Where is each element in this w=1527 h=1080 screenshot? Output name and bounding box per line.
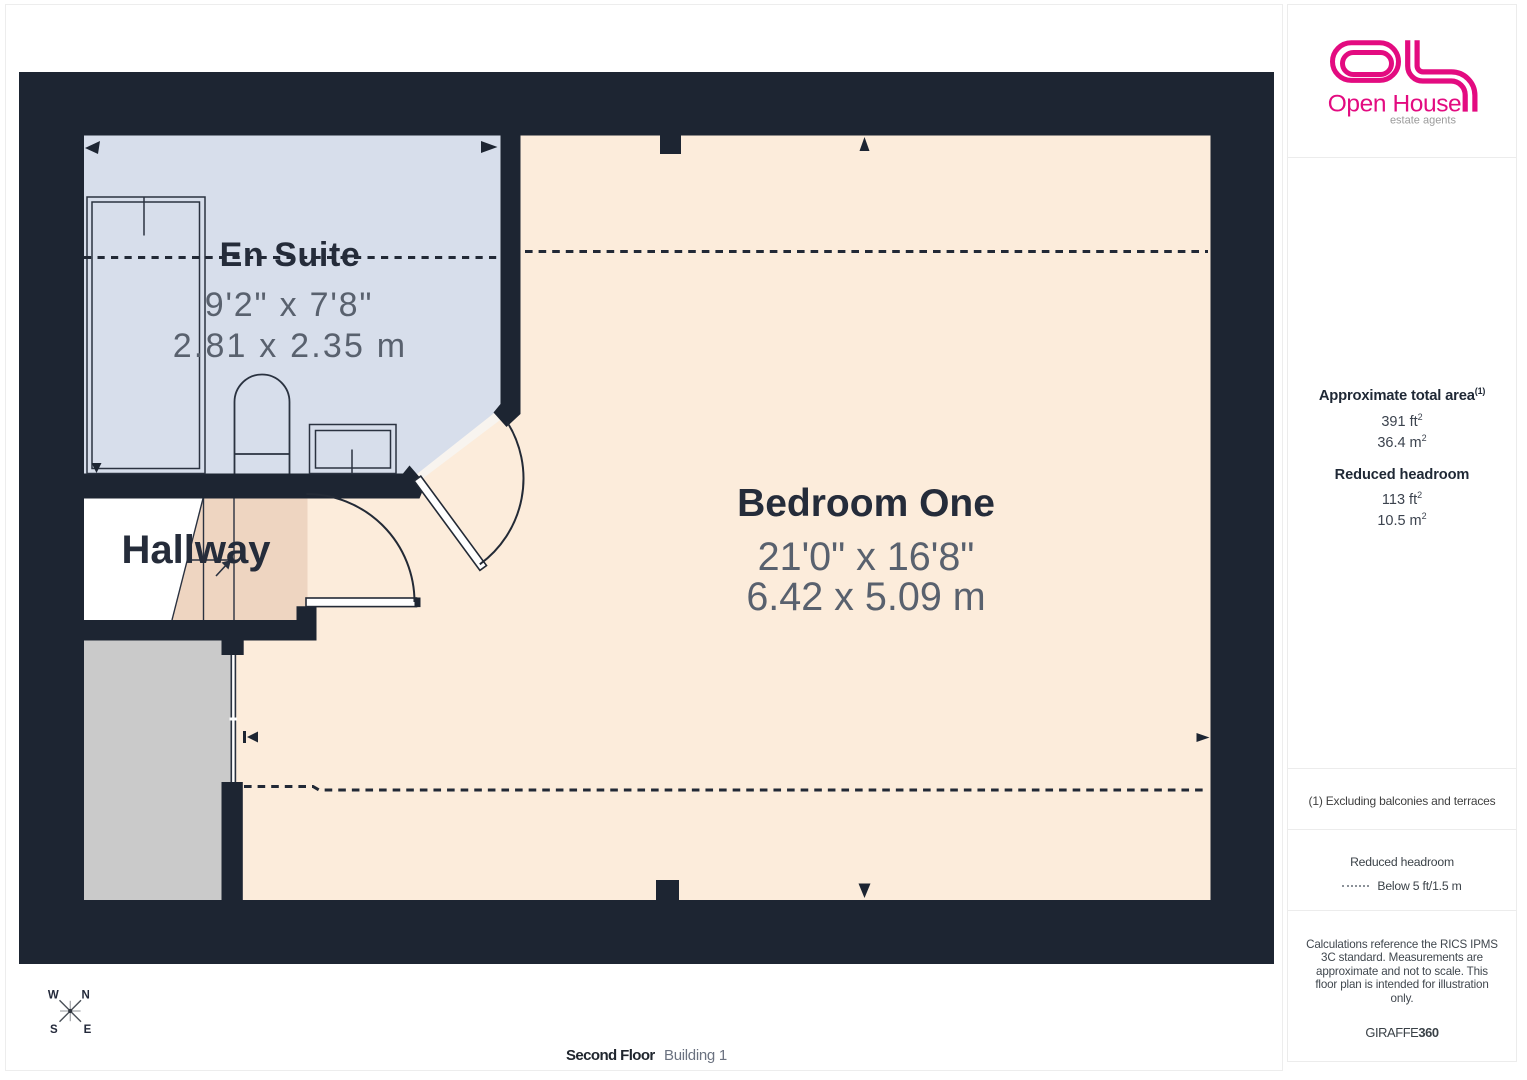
svg-text:2.81 x 2.35 m: 2.81 x 2.35 m <box>173 327 408 365</box>
svg-text:Open House: Open House <box>1328 91 1462 118</box>
svg-text:Building 1: Building 1 <box>664 1047 727 1064</box>
svg-text:Second Floor: Second Floor <box>566 1047 655 1064</box>
svg-text:En Suite: En Suite <box>220 236 361 274</box>
svg-text:N: N <box>81 990 89 1002</box>
svg-text:W: W <box>48 990 59 1002</box>
svg-text:Hallway: Hallway <box>122 528 272 572</box>
svg-text:S: S <box>50 1024 58 1036</box>
svg-text:E: E <box>84 1024 92 1036</box>
svg-text:9'2" x 7'8": 9'2" x 7'8" <box>205 286 373 324</box>
svg-text:21'0" x 16'8": 21'0" x 16'8" <box>758 535 975 579</box>
svg-text:6.42 x 5.09 m: 6.42 x 5.09 m <box>746 575 985 619</box>
svg-text:estate agents: estate agents <box>1390 115 1457 127</box>
svg-text:Bedroom One: Bedroom One <box>737 482 995 525</box>
